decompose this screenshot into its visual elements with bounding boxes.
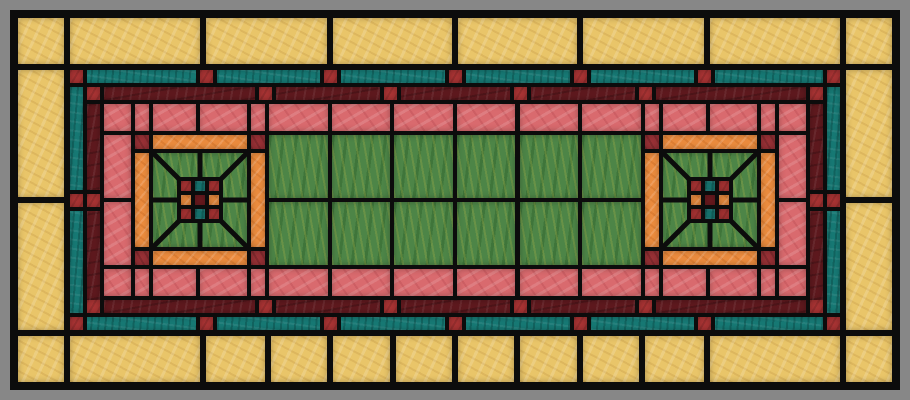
yellow-border-pane xyxy=(846,203,892,330)
medallion-corner-square xyxy=(135,135,149,149)
medallion-grid-cell-red xyxy=(209,209,219,219)
yellow-border-pane xyxy=(333,18,452,64)
medallion-grid-cell-red xyxy=(719,181,729,191)
yellow-border-pane xyxy=(846,336,892,382)
pink-band-pane xyxy=(779,202,806,265)
pink-band-pane xyxy=(520,104,578,131)
maroon-band-pane xyxy=(104,87,806,100)
pink-band-pane xyxy=(332,269,390,296)
yellow-border-pane xyxy=(583,336,639,382)
pink-band-pane xyxy=(153,269,196,296)
pink-band-pane xyxy=(153,104,196,131)
stained-glass-panel xyxy=(0,0,910,400)
maroon-band-corner-square xyxy=(810,300,823,313)
pink-band-pane xyxy=(269,104,328,131)
green-field-pane xyxy=(332,135,390,198)
pink-band-pane xyxy=(520,269,578,296)
pink-band-pane xyxy=(135,269,149,296)
maroon-band-corner-square xyxy=(87,300,100,313)
green-field-pane xyxy=(457,135,515,198)
pink-band-corner-pane xyxy=(104,104,131,131)
medallion-orange-bar xyxy=(761,153,775,247)
pink-band-pane xyxy=(710,269,757,296)
pink-band-pane xyxy=(779,135,806,198)
teal-band-accent-square xyxy=(574,70,587,83)
green-field-pane xyxy=(457,202,515,265)
medallion-grid-cell-red xyxy=(209,181,219,191)
medallion-corner-square xyxy=(645,251,659,265)
green-field-pane xyxy=(520,135,578,198)
yellow-border-pane xyxy=(396,336,452,382)
pink-band-pane xyxy=(582,104,641,131)
pink-band-pane xyxy=(663,104,706,131)
yellow-border-pane xyxy=(710,336,840,382)
medallion-orange-bar xyxy=(153,135,247,149)
medallion-grid-cell-teal xyxy=(195,181,205,191)
pink-band-pane xyxy=(457,269,515,296)
medallion-grid-cell-center_maroon xyxy=(195,195,205,205)
green-field-pane xyxy=(582,202,641,265)
maroon-band-accent-square xyxy=(259,87,272,100)
medallion-grid-cell-red xyxy=(691,209,701,219)
teal-band-accent-square xyxy=(70,317,83,330)
yellow-border-pane xyxy=(333,336,390,382)
medallion-grid-cell-orange xyxy=(181,195,191,205)
medallion-grid-cell-orange xyxy=(209,195,219,205)
yellow-border-pane xyxy=(271,336,327,382)
teal-band-accent-square xyxy=(827,70,840,83)
yellow-border-pane xyxy=(206,336,265,382)
yellow-border-pane xyxy=(458,18,577,64)
pink-band-pane xyxy=(332,104,390,131)
yellow-border-pane xyxy=(18,70,64,197)
green-field-pane xyxy=(394,135,453,198)
teal-band-accent-square xyxy=(574,317,587,330)
maroon-band-corner-square xyxy=(810,87,823,100)
teal-band-accent-square xyxy=(200,70,213,83)
pink-band-pane xyxy=(761,269,775,296)
pink-band-pane xyxy=(269,269,328,296)
yellow-border-pane xyxy=(520,336,577,382)
medallion-grid-cell-red xyxy=(691,181,701,191)
yellow-border-pane xyxy=(583,18,704,64)
medallion-grid-cell-red xyxy=(181,209,191,219)
yellow-border-pane xyxy=(18,336,64,382)
medallion-orange-bar xyxy=(663,251,757,265)
maroon-band-accent-square xyxy=(639,300,652,313)
medallion-corner-square xyxy=(761,251,775,265)
teal-band-accent-square xyxy=(324,70,337,83)
green-field-pane xyxy=(269,202,328,265)
green-field-pane xyxy=(582,135,641,198)
yellow-border-pane xyxy=(18,203,64,330)
pink-band-pane xyxy=(200,269,247,296)
maroon-band-corner-square xyxy=(87,87,100,100)
pink-band-pane xyxy=(645,104,659,131)
teal-band-accent-square xyxy=(70,70,83,83)
square-medallion xyxy=(135,135,265,265)
yellow-border-pane xyxy=(846,18,892,64)
medallion-orange-bar xyxy=(153,251,247,265)
green-field-pane xyxy=(394,202,453,265)
maroon-band-pane xyxy=(104,300,806,313)
pink-band-pane xyxy=(104,202,131,265)
pink-band-pane xyxy=(457,104,515,131)
medallion-corner-square xyxy=(645,135,659,149)
green-field-pane xyxy=(269,135,328,198)
teal-band-accent-square xyxy=(827,317,840,330)
yellow-border-pane xyxy=(206,18,327,64)
yellow-border-pane xyxy=(645,336,704,382)
pink-band-pane xyxy=(200,104,247,131)
teal-band-accent-square xyxy=(449,70,462,83)
teal-band-accent-square xyxy=(200,317,213,330)
maroon-band-accent-square xyxy=(384,300,397,313)
teal-band-accent-square xyxy=(698,317,711,330)
teal-band-accent-square xyxy=(70,194,83,207)
yellow-border-pane xyxy=(458,336,514,382)
yellow-border-pane xyxy=(18,18,64,64)
pink-band-pane xyxy=(645,269,659,296)
pink-band-pane xyxy=(394,269,453,296)
pink-band-pane xyxy=(761,104,775,131)
pink-band-pane xyxy=(394,104,453,131)
pink-band-pane xyxy=(710,104,757,131)
maroon-band-accent-square xyxy=(87,194,100,207)
teal-band-accent-square xyxy=(449,317,462,330)
teal-band-accent-square xyxy=(698,70,711,83)
medallion-orange-bar xyxy=(645,153,659,247)
medallion-grid-cell-orange xyxy=(691,195,701,205)
yellow-border-pane xyxy=(846,70,892,197)
pink-band-pane xyxy=(251,269,265,296)
medallion-corner-square xyxy=(251,135,265,149)
medallion-orange-bar xyxy=(663,135,757,149)
maroon-band-accent-square xyxy=(514,87,527,100)
maroon-band-accent-square xyxy=(810,194,823,207)
medallion-grid-cell-teal xyxy=(195,209,205,219)
pink-band-corner-pane xyxy=(104,269,131,296)
medallion-orange-bar xyxy=(251,153,265,247)
medallion-grid-cell-center_maroon xyxy=(705,195,715,205)
medallion-grid-cell-red xyxy=(181,181,191,191)
pink-band-corner-pane xyxy=(779,104,806,131)
maroon-band-accent-square xyxy=(639,87,652,100)
pink-band-corner-pane xyxy=(779,269,806,296)
medallion-corner-square xyxy=(761,135,775,149)
yellow-border-pane xyxy=(710,18,840,64)
medallion-grid-cell-teal xyxy=(705,181,715,191)
medallion-corner-square xyxy=(135,251,149,265)
pink-band-pane xyxy=(135,104,149,131)
maroon-band-accent-square xyxy=(514,300,527,313)
medallion-corner-square xyxy=(251,251,265,265)
pink-band-pane xyxy=(663,269,706,296)
medallion-grid-cell-teal xyxy=(705,209,715,219)
pink-band-pane xyxy=(104,135,131,198)
medallion-grid-cell-red xyxy=(719,209,729,219)
medallion-grid-cell-orange xyxy=(719,195,729,205)
green-field-pane xyxy=(332,202,390,265)
green-field-pane xyxy=(520,202,578,265)
maroon-band-accent-square xyxy=(259,300,272,313)
yellow-border-pane xyxy=(70,18,200,64)
teal-band-accent-square xyxy=(827,194,840,207)
pink-band-pane xyxy=(251,104,265,131)
pink-band-pane xyxy=(582,269,641,296)
teal-band-accent-square xyxy=(324,317,337,330)
square-medallion xyxy=(645,135,775,265)
yellow-border-pane xyxy=(70,336,200,382)
maroon-band-accent-square xyxy=(384,87,397,100)
medallion-orange-bar xyxy=(135,153,149,247)
